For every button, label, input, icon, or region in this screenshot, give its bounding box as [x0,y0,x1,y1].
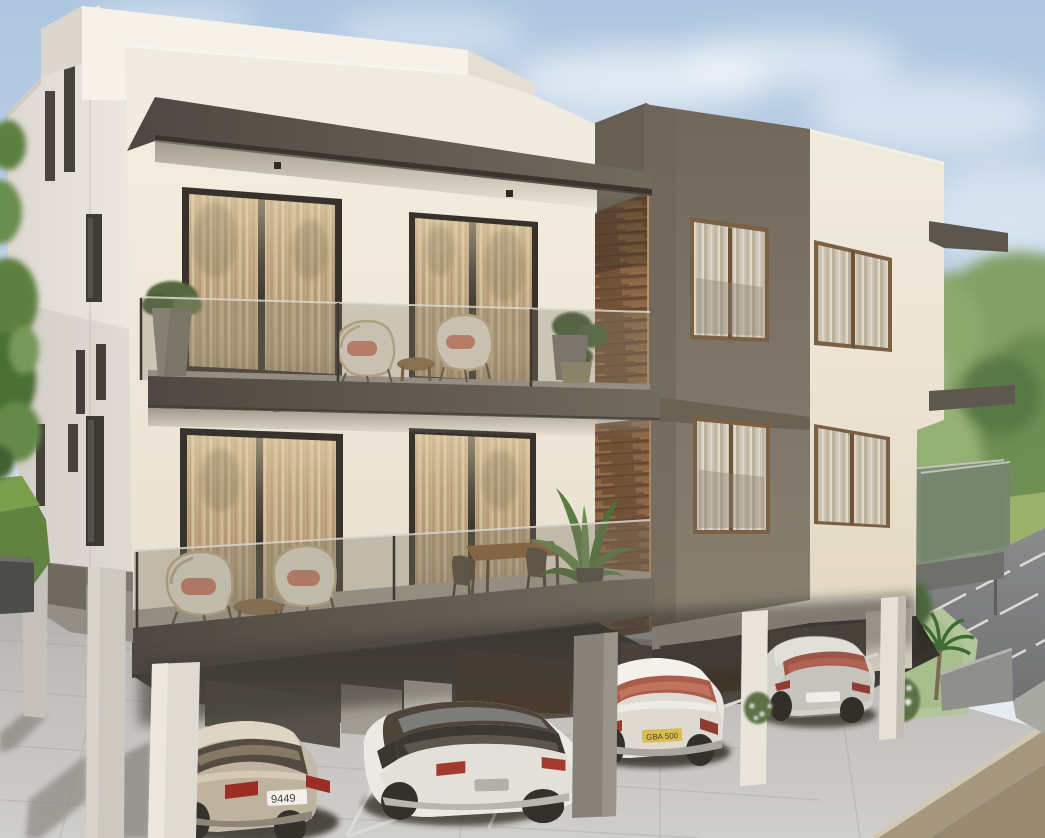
svg-text:9449: 9449 [271,793,296,806]
svg-text:GBA 500: GBA 500 [646,731,679,742]
